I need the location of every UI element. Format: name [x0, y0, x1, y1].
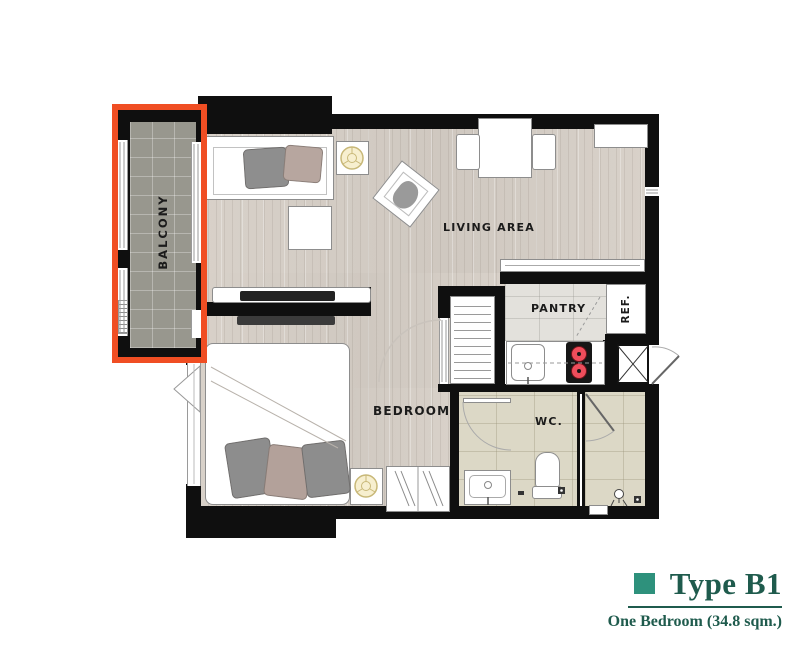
kitchen-sink — [511, 344, 545, 381]
breakfast-counter — [500, 259, 645, 272]
living-area-label: LIVING AREA — [443, 221, 535, 234]
bedroom-sliding-door — [439, 318, 449, 384]
wc-label: WC. — [535, 415, 563, 428]
floor-plan-canvas: BALCONY LIVING AREA BEDROOM PANTRY REF. — [0, 0, 800, 648]
bedroom-label: BEDROOM — [373, 404, 450, 418]
vanity — [464, 470, 511, 505]
burner-center — [577, 369, 581, 373]
wc-door-leaf — [463, 398, 511, 403]
legend-subtitle: One Bedroom (34.8 sqm.) — [608, 613, 782, 631]
wall-bedroom-wc-divider — [450, 384, 459, 518]
toilet-tank — [532, 486, 562, 499]
dining-chair-left — [456, 134, 480, 170]
wall-pantry-top — [500, 272, 646, 284]
counter-line — [505, 265, 640, 266]
wall-bottom-thick — [186, 506, 336, 538]
balcony-highlight-box — [112, 104, 207, 363]
bedroom-window — [187, 362, 201, 486]
sofa-pillow-taupe — [283, 144, 324, 183]
service-washer-box — [589, 505, 608, 515]
legend-row: Type B1 — [608, 568, 782, 599]
wall-tv-partition — [190, 302, 371, 316]
service-room-floor — [585, 392, 646, 508]
wall-top-thick — [198, 96, 332, 134]
right-wall-vent — [645, 187, 659, 196]
bed-pillow-gray-2 — [301, 440, 351, 499]
stove-burner-bottom — [571, 363, 587, 379]
luggage-bench — [386, 466, 450, 512]
tv-screen — [240, 291, 335, 301]
legend-divider — [628, 606, 782, 608]
wall-bottom-thin — [336, 506, 659, 519]
burner-center — [577, 352, 581, 356]
dining-table — [478, 118, 532, 178]
coffee-table — [288, 206, 332, 250]
nightstand — [350, 468, 383, 505]
wall-wardrobe-right — [494, 286, 505, 390]
divider-glass-line — [580, 394, 582, 506]
entry-shaft-box — [617, 344, 649, 384]
stove-burner-top — [571, 346, 587, 362]
legend-color-swatch — [634, 573, 655, 594]
wall-wc-top — [438, 384, 646, 392]
legend: Type B1 One Bedroom (34.8 sqm.) — [608, 568, 782, 631]
console-shelf — [594, 124, 648, 148]
pantry-label: PANTRY — [531, 302, 586, 315]
wardrobe — [450, 296, 495, 384]
sofa-pillow-gray — [243, 147, 290, 190]
toilet — [535, 452, 560, 488]
fridge-label: REF. — [620, 295, 632, 324]
tv-shelf-bedroom-side — [237, 316, 335, 325]
wall-right-mid — [645, 196, 659, 345]
wall-right-lower — [645, 384, 659, 518]
wardrobe-shelves — [454, 301, 491, 379]
wall-stove-shaft — [603, 340, 617, 386]
wall-left-lower — [186, 484, 201, 510]
wall-wardrobe-left — [438, 286, 450, 318]
dining-chair-right — [532, 134, 556, 170]
legend-type-title: Type B1 — [670, 568, 782, 599]
side-table — [336, 141, 369, 175]
vanity-basin — [469, 475, 506, 498]
